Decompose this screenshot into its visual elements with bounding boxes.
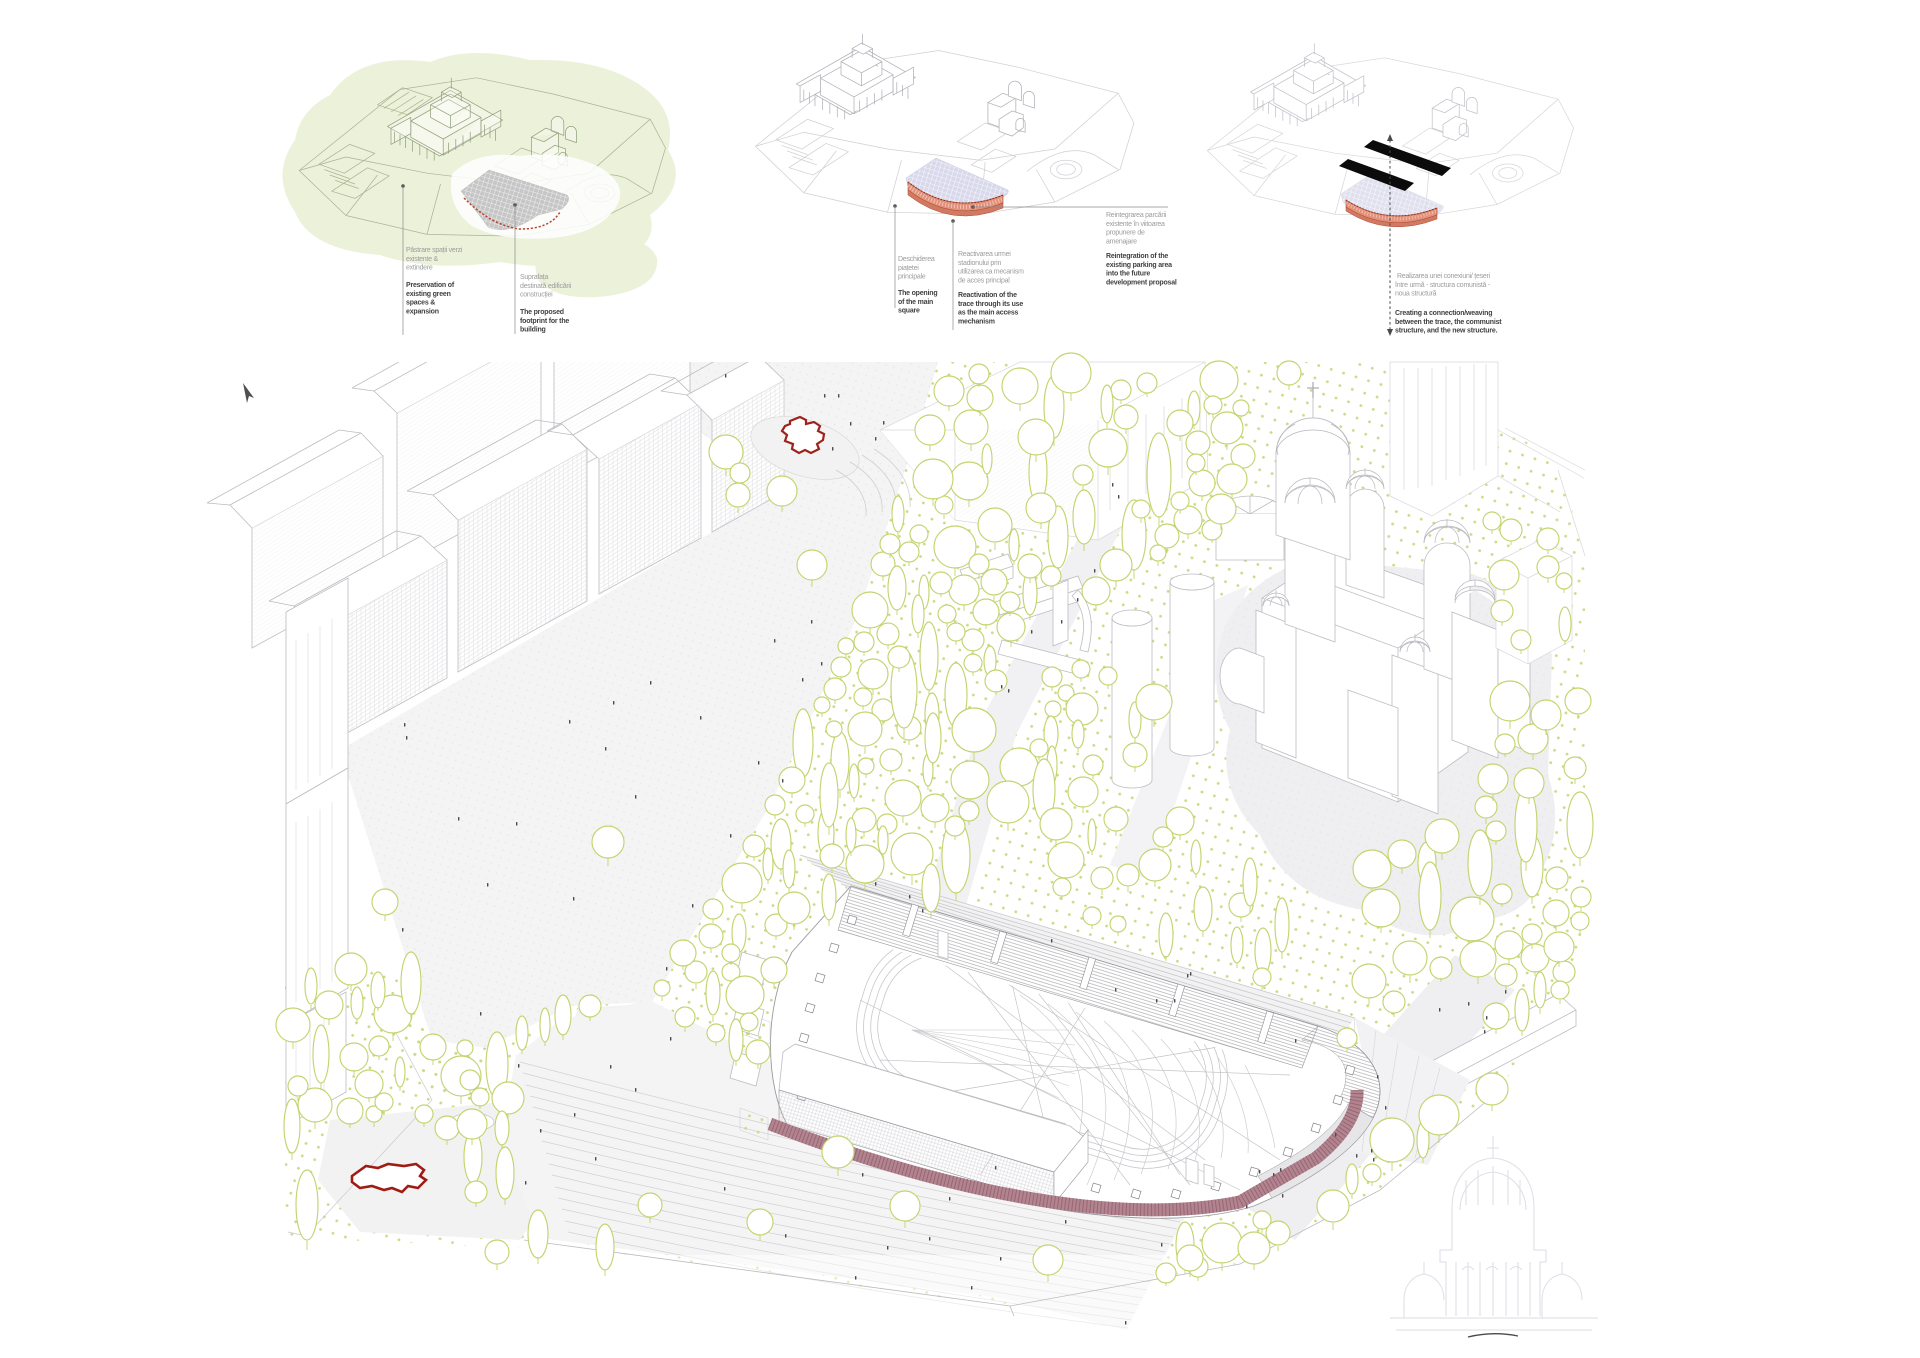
svg-text:Creating a connection/weavingb: Creating a connection/weavingbetween the… bbox=[1395, 310, 1502, 335]
